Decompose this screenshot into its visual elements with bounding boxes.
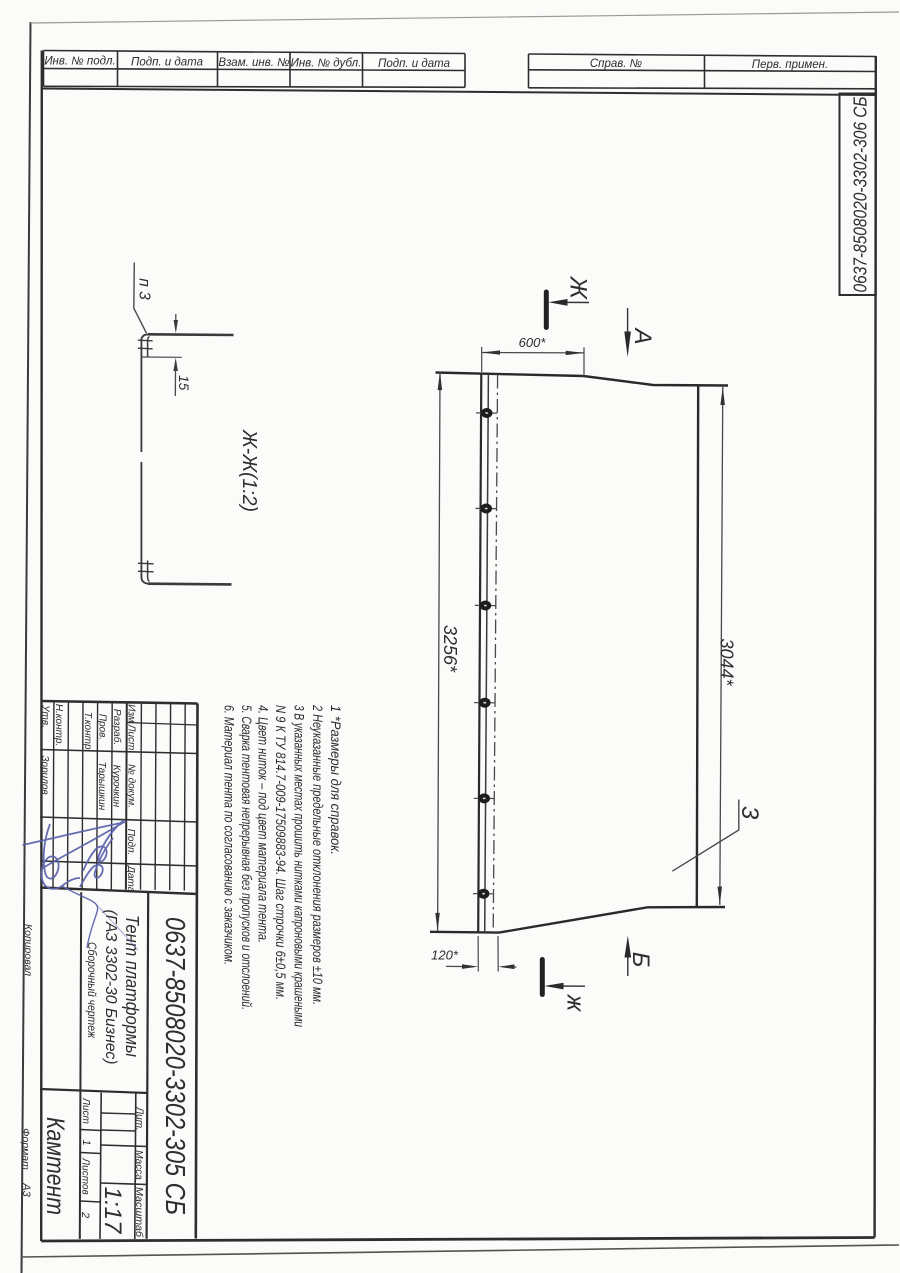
svg-text:Взам. инв. №: Взам. инв. № — [218, 57, 290, 69]
svg-text:Лист: Лист — [80, 1097, 91, 1124]
svg-text:Курочкин: Курочкин — [111, 765, 122, 808]
svg-text:Тарышкин: Тарышкин — [96, 762, 107, 811]
svg-text:Изм: Изм — [126, 704, 137, 723]
svg-text:2 Неуказанные предельные откло: 2 Неуказанные предельные отклонения разм… — [310, 704, 325, 1005]
svg-text:2: 2 — [79, 1211, 91, 1218]
svg-text:(ГАЗ 3302-30 Бизнес): (ГАЗ 3302-30 Бизнес) — [102, 910, 119, 1065]
svg-text:Камтент: Камтент — [41, 1117, 69, 1215]
svg-text:Формат: Формат — [20, 1128, 32, 1170]
svg-text:Ж-Ж(1:2): Ж-Ж(1:2) — [238, 429, 261, 512]
svg-text:Б: Б — [627, 952, 654, 968]
svg-text:1: 1 — [80, 1139, 92, 1145]
svg-text:1 *Размеры для справок.: 1 *Размеры для справок. — [328, 705, 343, 855]
svg-text:Подп.: Подп. — [125, 829, 136, 856]
svg-text:Инв. № подл.: Инв. № подл. — [44, 56, 115, 68]
svg-text:1:17: 1:17 — [99, 1187, 126, 1235]
svg-text:3: 3 — [736, 806, 763, 820]
svg-text:ж: ж — [562, 994, 589, 1013]
svg-text:Дата: Дата — [125, 865, 136, 893]
svg-text:А3: А3 — [20, 1182, 32, 1197]
svg-text:Пров.: Пров. — [97, 714, 108, 740]
svg-text:0637-8508020-3302-306 СБ: 0637-8508020-3302-306 СБ — [851, 96, 871, 292]
svg-text:3 В указанных местах прошить н: 3 В указанных местах прошить нитками кап… — [292, 705, 307, 1027]
svg-text:А: А — [629, 326, 656, 344]
svg-text:Подп. и дата: Подп. и дата — [378, 58, 450, 70]
svg-text:№ докум.: № докум. — [125, 764, 136, 808]
svg-text:N 9 К ТУ 814.7-009-17509883-94: N 9 К ТУ 814.7-009-17509883-94. Шаг стро… — [273, 705, 288, 1000]
svg-text:Т.контр.: Т.контр. — [82, 712, 93, 752]
svg-text:15: 15 — [176, 375, 191, 391]
svg-text:Инв. № дубл.: Инв. № дубл. — [291, 58, 362, 70]
svg-text:Копировал: Копировал — [22, 924, 34, 976]
svg-text:0637-8508020-3302-305 СБ: 0637-8508020-3302-305 СБ — [160, 917, 191, 1215]
svg-text:Справ. №: Справ. № — [590, 58, 643, 70]
svg-text:Зорилов: Зорилов — [39, 755, 50, 794]
svg-text:4. Цвет ниток – под цвет матер: 4. Цвет ниток – под цвет материала тента… — [256, 705, 271, 943]
svg-text:Листов: Листов — [80, 1157, 91, 1194]
svg-text:Лист: Лист — [126, 724, 137, 751]
svg-text:Лит.: Лит. — [134, 1106, 145, 1130]
svg-text:п 3: п 3 — [136, 278, 153, 300]
svg-text:Разраб.: Разраб. — [111, 709, 123, 745]
svg-text:Утв.: Утв. — [40, 704, 51, 728]
svg-text:Сборочный чертеж: Сборочный чертеж — [85, 942, 99, 1039]
svg-text:Перв. примен.: Перв. примен. — [752, 59, 828, 71]
svg-text:Н.контр.: Н.контр. — [53, 704, 64, 746]
svg-text:Ж: Ж — [565, 276, 592, 301]
svg-text:Масса: Масса — [133, 1150, 144, 1180]
svg-text:Подп. и дата: Подп. и дата — [131, 57, 203, 69]
svg-text:6. Материал тента по согласова: 6. Материал тента по согласованию с зака… — [222, 705, 237, 965]
svg-text:600*: 600* — [519, 335, 547, 350]
svg-text:3256*: 3256* — [440, 625, 460, 673]
svg-text:120*: 120* — [431, 948, 459, 963]
svg-text:3044*: 3044* — [717, 638, 737, 686]
svg-text:Масштаб: Масштаб — [133, 1187, 145, 1238]
svg-text:5. Сварка тентовая непрерывная: 5. Сварка тентовая непрерывная без пропу… — [239, 705, 254, 1010]
